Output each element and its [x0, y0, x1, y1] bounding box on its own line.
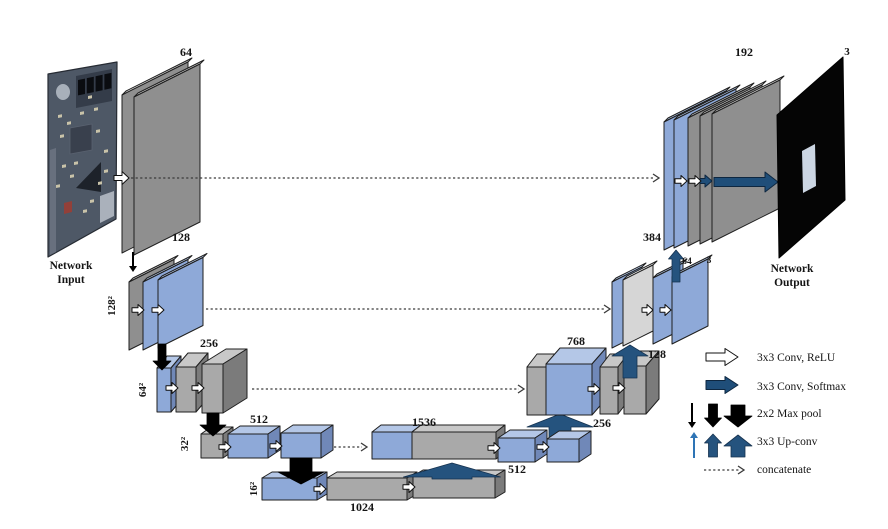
legend-conv-softmax-arrow [706, 377, 738, 394]
enc3-box3 [202, 364, 223, 413]
bottleneck-box2 [327, 478, 407, 500]
input-image-strip [50, 148, 56, 255]
input-image-port [96, 75, 103, 92]
enc4-box3 [281, 433, 321, 458]
channel-label: 256 [200, 336, 218, 350]
bottleneck-box1 [262, 478, 317, 500]
channel-label: 768 [567, 334, 585, 348]
enc1-plane2 [134, 64, 200, 255]
legend-label: 3x3 Conv, ReLU [757, 352, 836, 364]
dec4-box4 [547, 439, 579, 462]
output-caption: Output [774, 277, 810, 289]
dec3-box2 [546, 364, 592, 415]
size-label: 32² [179, 436, 191, 451]
input-image-red-part [64, 201, 72, 214]
channel-label: 64 [682, 257, 692, 267]
legend-label: 3x3 Up-conv [757, 436, 818, 448]
input-image-port [87, 77, 94, 94]
channel-label: 512 [508, 462, 526, 476]
channel-label: 3 [844, 46, 850, 58]
dec4-box3 [498, 438, 535, 462]
channel-label: 128 [172, 230, 190, 244]
channel-label: 64 [180, 45, 192, 59]
legend-upconv-arrow-small-head [690, 432, 698, 438]
dec4-box2 [412, 432, 496, 459]
maxpool-arrow-1-head [129, 266, 137, 272]
input-caption: Input [57, 274, 85, 286]
legend-maxpool-arrow-small-head [688, 422, 696, 428]
dec4-box1 [372, 432, 412, 459]
output-image-highlight [802, 144, 816, 193]
channel-label: 128 [648, 347, 666, 361]
unet-architecture-diagram: 64128128²25664²51232²102416²153651276825… [0, 0, 888, 529]
unet-architecture-figure: 64128128²25664²51232²102416²153651276825… [0, 0, 888, 529]
channel-label: 1024 [350, 500, 374, 514]
legend-maxpool-arrow-medium [705, 404, 722, 427]
size-label: 128² [106, 295, 118, 316]
input-caption: Network [50, 260, 93, 272]
legend-concatenate-arrow-head [738, 466, 744, 474]
legend-upconv-arrow-medium [705, 434, 722, 457]
size-label: 16² [248, 481, 260, 496]
input-image-blob [56, 84, 70, 100]
legend-label: 2x2 Max pool [757, 408, 822, 420]
channel-label: 3 [707, 256, 712, 266]
enc4-box2 [228, 434, 268, 458]
channel-label: 256 [593, 416, 611, 430]
channel-label: 192 [735, 45, 753, 59]
skip-connection-1-head [653, 174, 659, 182]
legend-conv-relu-arrow [706, 349, 738, 366]
legend-label: 3x3 Conv, Softmax [757, 381, 846, 393]
dec3-box1 [527, 367, 546, 415]
size-label: 64² [137, 382, 149, 397]
input-image-port [104, 73, 111, 90]
legend-label: concatenate [757, 464, 811, 476]
channel-label: 384 [643, 230, 661, 244]
legend-upconv-arrow-large [724, 435, 752, 457]
legend-maxpool-arrow-large [724, 405, 752, 427]
skip-connection-2-head [604, 305, 610, 313]
input-image-port [78, 79, 85, 96]
channel-label: 1536 [412, 415, 436, 429]
channel-label: 512 [250, 412, 268, 426]
input-image-chip [70, 124, 92, 154]
output-caption: Network [771, 263, 814, 275]
